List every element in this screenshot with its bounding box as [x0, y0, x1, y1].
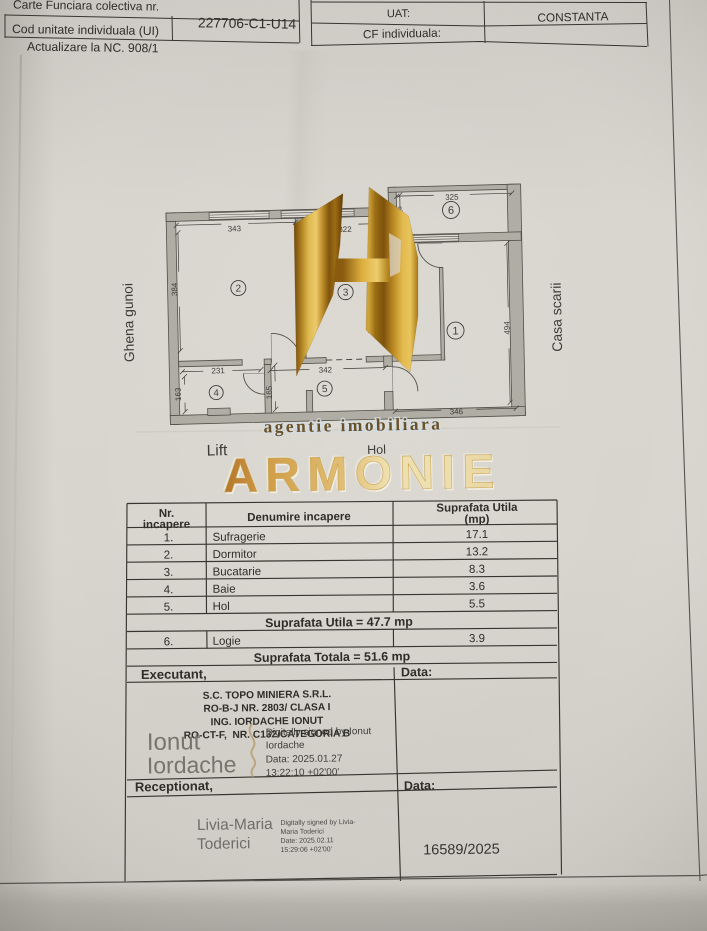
svg-text:S.C. TOPO MINIERA S.R.L.: S.C. TOPO MINIERA S.R.L.	[203, 689, 332, 702]
svg-text:Casa scarii: Casa scarii	[548, 282, 565, 352]
svg-text:Data:: Data:	[404, 778, 436, 793]
svg-text:16589/2025: 16589/2025	[423, 841, 500, 858]
svg-text:Dormitor: Dormitor	[213, 549, 257, 561]
svg-text:Receptionat,: Receptionat,	[135, 778, 213, 794]
svg-text:Denumire incapere: Denumire incapere	[247, 511, 351, 524]
svg-text:Livia-Maria: Livia-Maria	[197, 816, 273, 834]
svg-text:1.: 1.	[164, 532, 174, 544]
svg-text:Suprafata Totala = 51.6 mp: Suprafata Totala = 51.6 mp	[254, 649, 411, 665]
svg-text:Iordache: Iordache	[147, 751, 237, 778]
svg-text:6: 6	[448, 205, 454, 217]
svg-text:CF individuala:: CF individuala:	[363, 26, 441, 42]
svg-text:Ghena gunoi: Ghena gunoi	[120, 283, 137, 362]
svg-text:Iordache: Iordache	[266, 740, 306, 752]
svg-text:1: 1	[452, 325, 458, 337]
svg-text:Data:: Data:	[401, 665, 432, 679]
svg-text:325: 325	[445, 193, 459, 202]
svg-text:UAT:: UAT:	[387, 8, 410, 20]
svg-text:17.1: 17.1	[466, 529, 489, 541]
svg-text:4: 4	[213, 388, 219, 399]
svg-text:8.3: 8.3	[469, 564, 485, 576]
svg-text:13.2: 13.2	[466, 546, 489, 558]
svg-text:6.: 6.	[164, 636, 174, 648]
svg-text:346: 346	[450, 407, 464, 416]
svg-text:2.: 2.	[164, 550, 174, 562]
svg-text:5: 5	[322, 384, 328, 395]
svg-text:Digitally signed by Ionut: Digitally signed by Ionut	[266, 726, 372, 738]
svg-text:Actualizare la NC. 908/1: Actualizare la NC. 908/1	[27, 40, 159, 56]
svg-text:Logie: Logie	[213, 636, 241, 648]
svg-text:231: 231	[211, 366, 225, 375]
svg-text:incapere: incapere	[143, 519, 190, 531]
svg-text:Baie: Baie	[213, 584, 236, 596]
svg-text:13:22:10 +02'00': 13:22:10 +02'00'	[266, 767, 340, 779]
svg-text:163: 163	[174, 387, 183, 401]
svg-text:5.: 5.	[164, 602, 174, 614]
svg-text:Maria Toderici: Maria Toderici	[280, 828, 324, 836]
svg-text:Data: 2025.01.27: Data: 2025.01.27	[266, 753, 343, 765]
svg-text:Date: 2025.02.11: Date: 2025.02.11	[280, 837, 333, 845]
svg-text:Executant,: Executant,	[141, 666, 207, 682]
svg-text:384: 384	[170, 282, 179, 296]
svg-text:Suprafata Utila = 47.7 mp: Suprafata Utila = 47.7 mp	[265, 615, 413, 631]
svg-text:3.9: 3.9	[469, 633, 485, 645]
svg-text:342: 342	[319, 365, 333, 374]
svg-text:Toderici: Toderici	[197, 835, 251, 853]
svg-text:5.5: 5.5	[469, 598, 485, 610]
svg-text:343: 343	[228, 224, 242, 233]
svg-text:3: 3	[343, 287, 349, 298]
svg-text:Digitally signed by Livia-: Digitally signed by Livia-	[280, 819, 356, 827]
svg-text:15:29:06 +02'00': 15:29:06 +02'00'	[280, 846, 332, 854]
svg-text:227706-C1-U14: 227706-C1-U14	[198, 15, 297, 31]
svg-text:RO-B-J NR. 2803/ CLASA I: RO-B-J NR. 2803/ CLASA I	[203, 702, 330, 715]
svg-text:Cod unitate individuala (UI): Cod unitate individuala (UI)	[12, 22, 159, 38]
svg-text:3.6: 3.6	[469, 581, 485, 593]
svg-text:ARMONIE: ARMONIE	[223, 445, 502, 503]
svg-text:(mp): (mp)	[464, 514, 489, 526]
svg-text:165: 165	[265, 385, 274, 399]
svg-text:Suprafata Utila: Suprafata Utila	[436, 502, 518, 515]
svg-text:agentie imobiliara: agentie imobiliara	[263, 413, 442, 436]
svg-text:Carte Funciara colectiva nr.: Carte Funciara colectiva nr.	[13, 0, 159, 14]
svg-text:4.: 4.	[164, 584, 174, 596]
svg-text:Hol: Hol	[213, 601, 230, 613]
svg-text:3.: 3.	[164, 567, 174, 579]
svg-text:Sufragerie: Sufragerie	[213, 531, 266, 544]
svg-text:494: 494	[502, 321, 511, 335]
svg-text:CONSTANTA: CONSTANTA	[537, 9, 608, 24]
svg-text:2: 2	[235, 283, 241, 294]
svg-text:Bucatarie: Bucatarie	[213, 566, 262, 579]
